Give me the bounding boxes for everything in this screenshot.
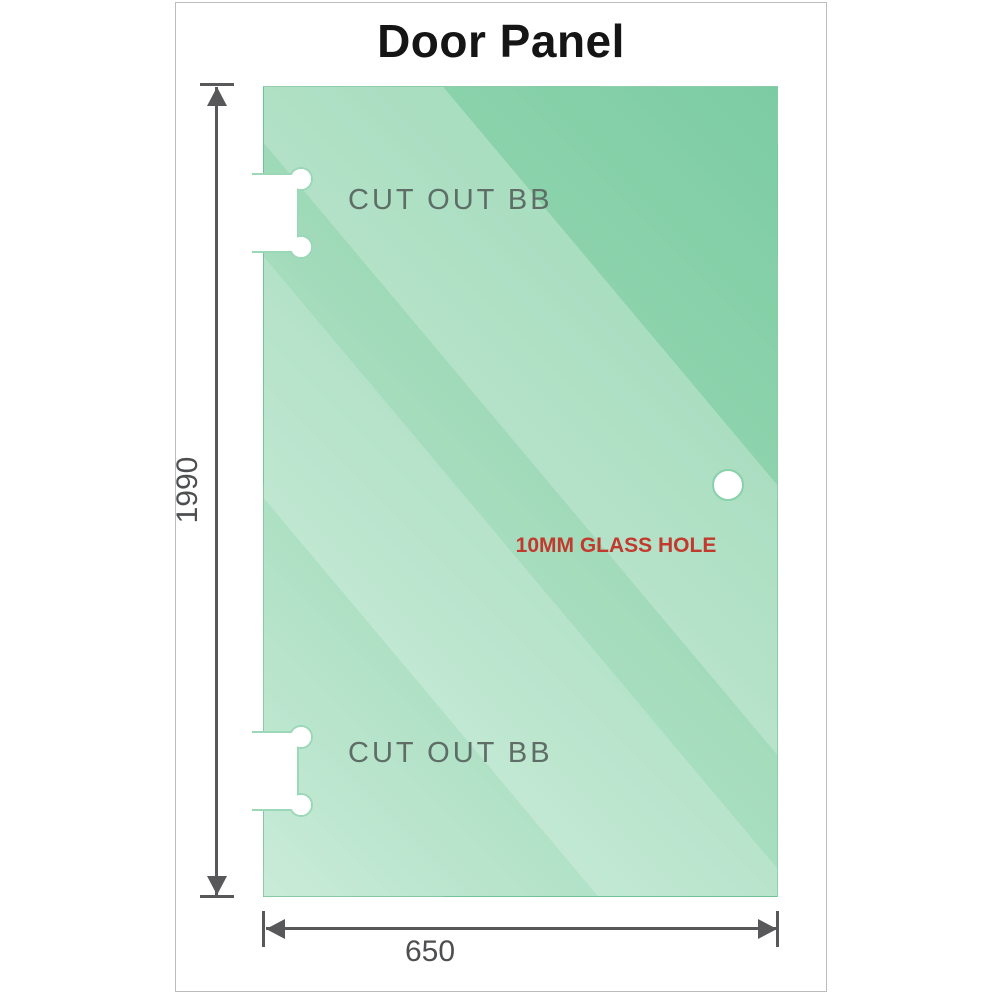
- height-dimension-bottom-tick: [200, 895, 234, 898]
- hinge-cutout-top-icon: [252, 166, 314, 262]
- cutout-label-top: CUT OUT BB: [348, 184, 608, 217]
- door-panel-drawing: Door Panel: [0, 0, 1000, 1000]
- height-dimension-value: 1990: [171, 430, 205, 550]
- cutout-label-bottom: CUT OUT BB: [348, 737, 608, 770]
- glass-hole-icon: [712, 469, 744, 501]
- width-dimension-line: [266, 927, 776, 930]
- page-title: Door Panel: [175, 14, 827, 68]
- height-dimension-line: [215, 87, 218, 895]
- hinge-cutout-bottom-icon: [252, 724, 314, 820]
- width-dimension-value: 650: [380, 935, 480, 969]
- arrow-down-icon: [207, 876, 227, 895]
- arrow-left-icon: [266, 919, 285, 939]
- width-dimension-right-tick: [776, 911, 779, 947]
- width-dimension-left-tick: [262, 911, 265, 947]
- glass-hole-label: 10MM GLASS HOLE: [506, 534, 726, 558]
- glass-panel: CUT OUT BB CUT OUT BB 10MM GLASS HOLE: [263, 86, 778, 897]
- arrow-right-icon: [758, 919, 777, 939]
- arrow-up-icon: [207, 87, 227, 106]
- height-dimension-top-tick: [200, 83, 234, 86]
